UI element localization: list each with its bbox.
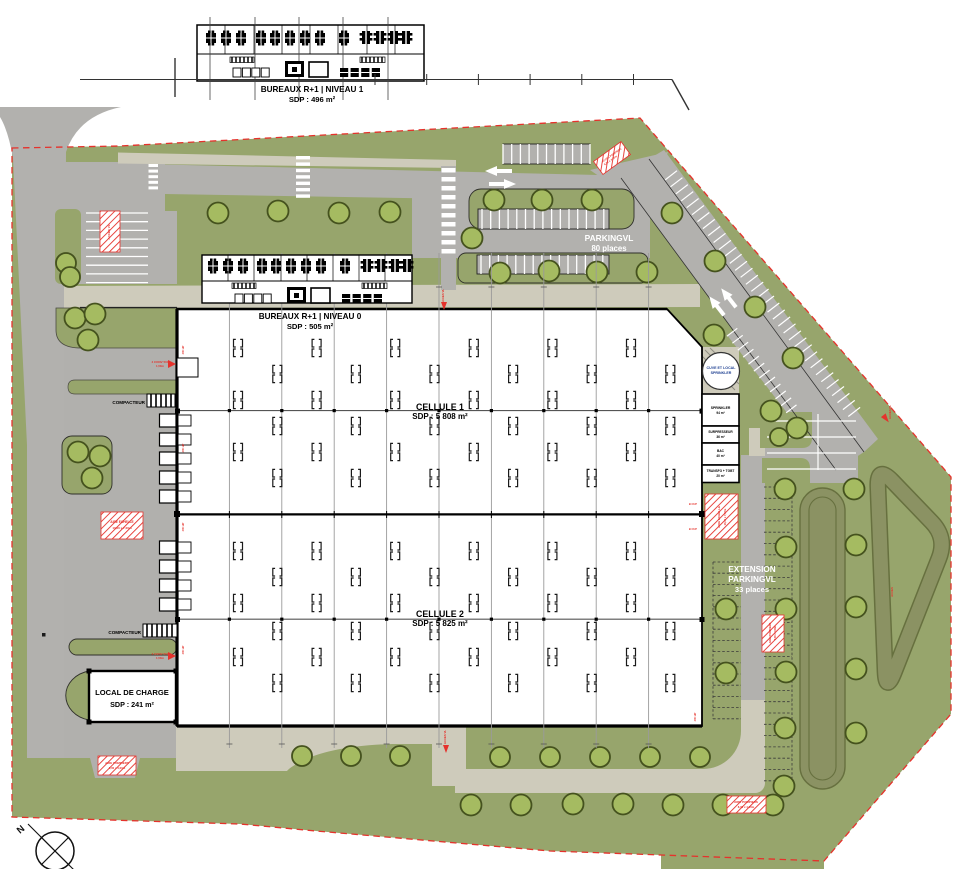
svg-text:SPRINKLER: SPRINKLER: [711, 406, 731, 410]
svg-text:COMPACTEUR: COMPACTEUR: [112, 400, 145, 405]
svg-text:400 HP: 400 HP: [181, 443, 185, 452]
svg-text:EXTENSION: EXTENSION: [728, 565, 775, 574]
svg-text:AIRE POMPIERS: AIRE POMPIERS: [105, 761, 129, 765]
svg-text:SDP : 496 m²: SDP : 496 m²: [289, 95, 336, 104]
svg-text:LOCAL DE CHARGE: LOCAL DE CHARGE: [95, 688, 169, 697]
svg-text:SDP : 505 m²: SDP : 505 m²: [287, 322, 334, 331]
svg-text:16,00 x 7,00m: 16,00 x 7,00m: [723, 508, 727, 525]
svg-text:AIRE ECHELLE: AIRE ECHELLE: [717, 506, 721, 528]
svg-text:400 HP: 400 HP: [181, 522, 185, 531]
svg-text:CUVE ET LOCAL: CUVE ET LOCAL: [707, 366, 737, 370]
svg-text:ACCES: ACCES: [890, 587, 894, 597]
svg-text:SURPRESSEUR: SURPRESSEUR: [708, 430, 733, 434]
svg-text:20 m²: 20 m²: [716, 474, 724, 478]
svg-text:TRANSFO + TGBT: TRANSFO + TGBT: [707, 469, 735, 473]
svg-text:8,00 x 4,00m: 8,00 x 4,00m: [738, 805, 755, 809]
svg-text:80 places: 80 places: [591, 244, 627, 253]
svg-text:1,50m: 1,50m: [156, 364, 164, 368]
svg-text:BAC: BAC: [717, 449, 725, 453]
svg-text:8,00 x 4,00m: 8,00 x 4,00m: [774, 626, 777, 640]
svg-text:1,50m: 1,50m: [156, 656, 164, 660]
svg-text:CELLULE 2: CELLULE 2: [416, 609, 464, 619]
svg-text:PARKINGVL: PARKINGVL: [728, 575, 776, 584]
svg-text:40 m³: 40 m³: [716, 454, 724, 458]
svg-text:AIRE ECHELLE: AIRE ECHELLE: [110, 520, 133, 524]
svg-text:BUREAUX R+1 | NIVEAU 0: BUREAUX R+1 | NIVEAU 0: [259, 312, 362, 321]
svg-text:PARKINGVL: PARKINGVL: [585, 233, 634, 243]
svg-text:8,00 x 4,00m: 8,00 x 4,00m: [109, 766, 126, 770]
svg-text:ACCES VL: ACCES VL: [107, 224, 111, 239]
svg-text:SDP : 241 m²: SDP : 241 m²: [110, 700, 154, 709]
svg-text:AIRE POMPIERS: AIRE POMPIERS: [768, 622, 772, 643]
svg-text:33 places: 33 places: [735, 585, 769, 594]
svg-text:400 HP: 400 HP: [181, 645, 185, 654]
svg-text:400 HP: 400 HP: [181, 345, 185, 354]
svg-text:SPRINKLER: SPRINKLER: [711, 371, 732, 375]
svg-text:B CUP: B CUP: [689, 502, 697, 506]
svg-text:ACCES PL: ACCES PL: [888, 405, 892, 419]
svg-text:SDP : 5 808 m²: SDP : 5 808 m²: [412, 412, 468, 421]
svg-text:AIRE POMPIERS: AIRE POMPIERS: [734, 800, 758, 804]
svg-text:94 m²: 94 m²: [716, 411, 724, 415]
svg-text:400 HP: 400 HP: [693, 712, 697, 721]
svg-text:ACCES VL: ACCES VL: [443, 730, 447, 744]
svg-text:CELLULE 1: CELLULE 1: [416, 402, 464, 412]
svg-text:36 m²: 36 m²: [716, 435, 724, 439]
svg-text:SDP : 5 825 m²: SDP : 5 825 m²: [412, 619, 468, 628]
svg-text:10,00 x 7,00m: 10,00 x 7,00m: [112, 526, 132, 530]
svg-text:BUREAUX R+1 | NIVEAU 1: BUREAUX R+1 | NIVEAU 1: [261, 85, 364, 94]
svg-text:B CUP: B CUP: [689, 527, 697, 531]
svg-text:COMPACTEUR: COMPACTEUR: [108, 630, 141, 635]
svg-text:ACCES VL: ACCES VL: [441, 289, 445, 303]
